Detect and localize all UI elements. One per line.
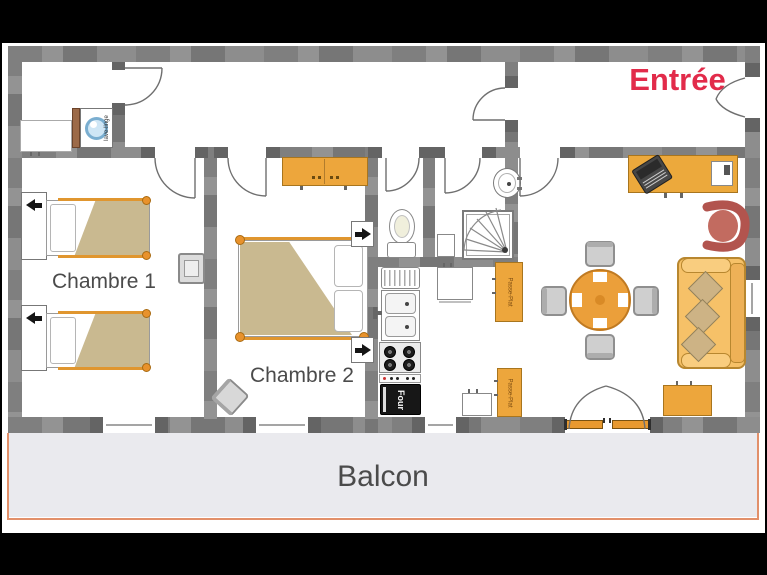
balcony-door-swing	[569, 386, 606, 429]
door-arc-bathroom	[445, 158, 480, 193]
laptop-icon	[632, 155, 673, 194]
door-arc-laundry	[125, 68, 162, 105]
door-arc-hall	[473, 88, 505, 120]
door-arc-bedroom2	[228, 158, 266, 196]
door-arc-bedroom1	[155, 158, 195, 198]
entrance-door-swing	[716, 99, 745, 117]
armchair	[707, 205, 745, 247]
entrance-door-swing	[716, 78, 745, 99]
shower-drain	[502, 247, 508, 253]
door-arc-wc	[386, 158, 419, 191]
door-arc-living	[520, 158, 558, 196]
floor-plan: Balcon lave-linge Chambre 1	[0, 0, 767, 575]
balcony-door-swing	[606, 386, 645, 429]
plan-overlay	[0, 0, 767, 575]
shower-fan-icon	[464, 208, 507, 252]
